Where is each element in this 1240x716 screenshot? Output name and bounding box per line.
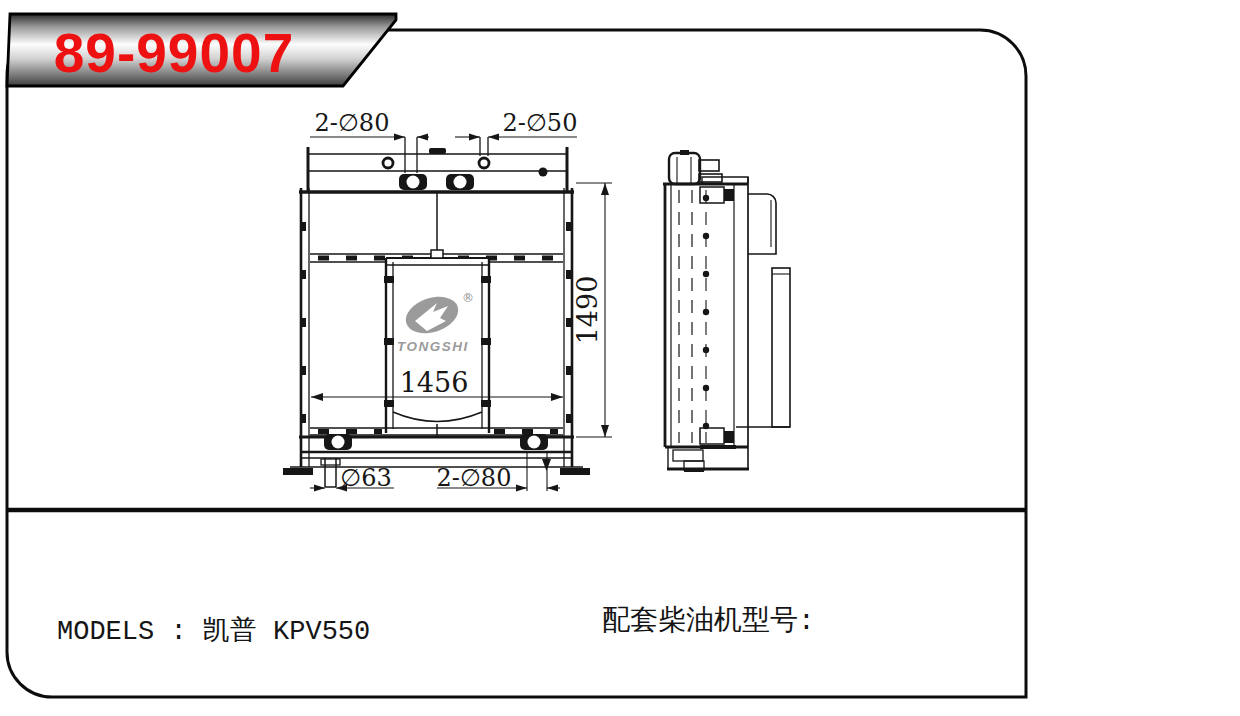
spec-engine-model: 配套柴油机型号:: [602, 602, 961, 642]
registered-mark: ®: [462, 291, 474, 305]
filler-neck-notch: [680, 150, 689, 155]
top-port-nuts: [399, 174, 474, 190]
drain-pipe: [321, 458, 340, 487]
spec-models: MODELS : 凯普 KPV550: [57, 613, 462, 651]
dim-label-bottom-d80: 2-∅80: [437, 464, 512, 492]
radiator-side-view: [663, 150, 790, 472]
dim-label-top-d50: 2-∅50: [503, 109, 578, 137]
lower-mount-rail: [772, 268, 790, 427]
logo-brand-text: TONGSHI: [397, 339, 469, 354]
specs-right-block: 配套柴油机型号: 配套功率(KW) : 直径*中心高 : ∅1340*880 安…: [602, 522, 961, 716]
dim-label-top-d80: 2-∅80: [315, 109, 390, 137]
dim-label-height: 1490: [572, 276, 603, 345]
dim-label-core-width: 1456: [400, 367, 469, 398]
filler-cap-bump: [429, 148, 446, 154]
dim-label-drain: ∅63: [340, 464, 391, 492]
part-number-text: 89-99007: [54, 22, 294, 84]
outlet-stub: [542, 459, 551, 471]
specs-left-block: MODELS : 凯普 KPV550 CORE SIZE : 1490×1456…: [57, 537, 462, 716]
part-number-banner: 89-99007: [7, 14, 396, 86]
upper-mount-bracket: [748, 194, 776, 254]
